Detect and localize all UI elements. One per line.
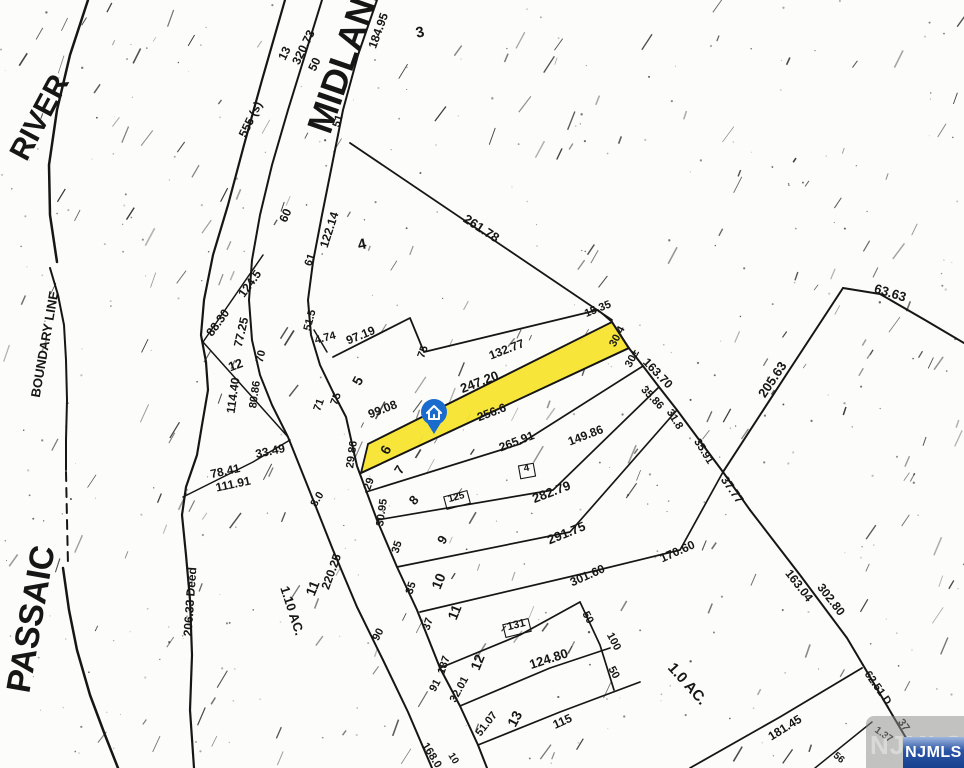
njmls-logo: NJMLS [903,737,964,768]
plat-map-drawing: PASSAICRIVERMIDLANDBOUNDARY LINE206.33 D… [0,0,964,768]
tax-map: PASSAICRIVERMIDLANDBOUNDARY LINE206.33 D… [0,0,964,768]
